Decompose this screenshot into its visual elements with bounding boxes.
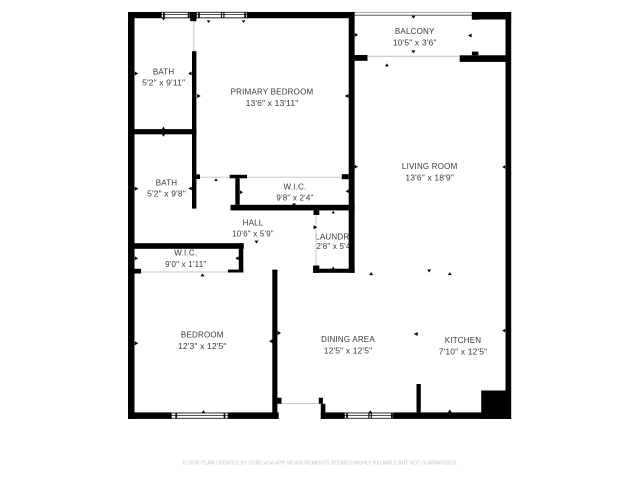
svg-text:BATH: BATH [156,179,178,188]
svg-text:KITCHEN: KITCHEN [445,336,482,345]
svg-text:LIVING ROOM: LIVING ROOM [402,162,458,171]
svg-text:10'6" x 5'9": 10'6" x 5'9" [232,229,274,238]
svg-text:W.I.C.: W.I.C. [284,183,307,192]
svg-text:9'8" x 2'4": 9'8" x 2'4" [276,194,313,203]
svg-text:5'2" x 9'11": 5'2" x 9'11" [142,78,185,88]
svg-text:7'10" x 12'5": 7'10" x 12'5" [439,346,488,356]
svg-text:13'6" x 13'11": 13'6" x 13'11" [246,98,299,108]
svg-text:2'8" x 5'4": 2'8" x 5'4" [316,242,353,251]
svg-text:13'6" x 18'9": 13'6" x 18'9" [405,173,454,183]
svg-text:BALCONY: BALCONY [395,27,435,36]
svg-text:W.I.C.: W.I.C. [174,248,197,257]
svg-text:PRIMARY BEDROOM: PRIMARY BEDROOM [231,88,314,97]
svg-text:BATH: BATH [153,67,175,76]
svg-text:9'0" x 1'11": 9'0" x 1'11" [165,260,206,269]
svg-text:12'3" x 12'5": 12'3" x 12'5" [178,341,227,351]
svg-text:5'2" x 9'8": 5'2" x 9'8" [147,189,186,199]
svg-text:12'5" x 12'5": 12'5" x 12'5" [324,346,373,356]
svg-text:HALL: HALL [243,218,264,227]
svg-text:DINING AREA: DINING AREA [321,335,375,344]
svg-text:BEDROOM: BEDROOM [181,331,224,340]
svg-text:FLOOR PLAN CREATED BY CUBICASA: FLOOR PLAN CREATED BY CUBICASA APP. MEAS… [183,461,458,467]
svg-text:10'5" x 3'6": 10'5" x 3'6" [393,38,437,48]
